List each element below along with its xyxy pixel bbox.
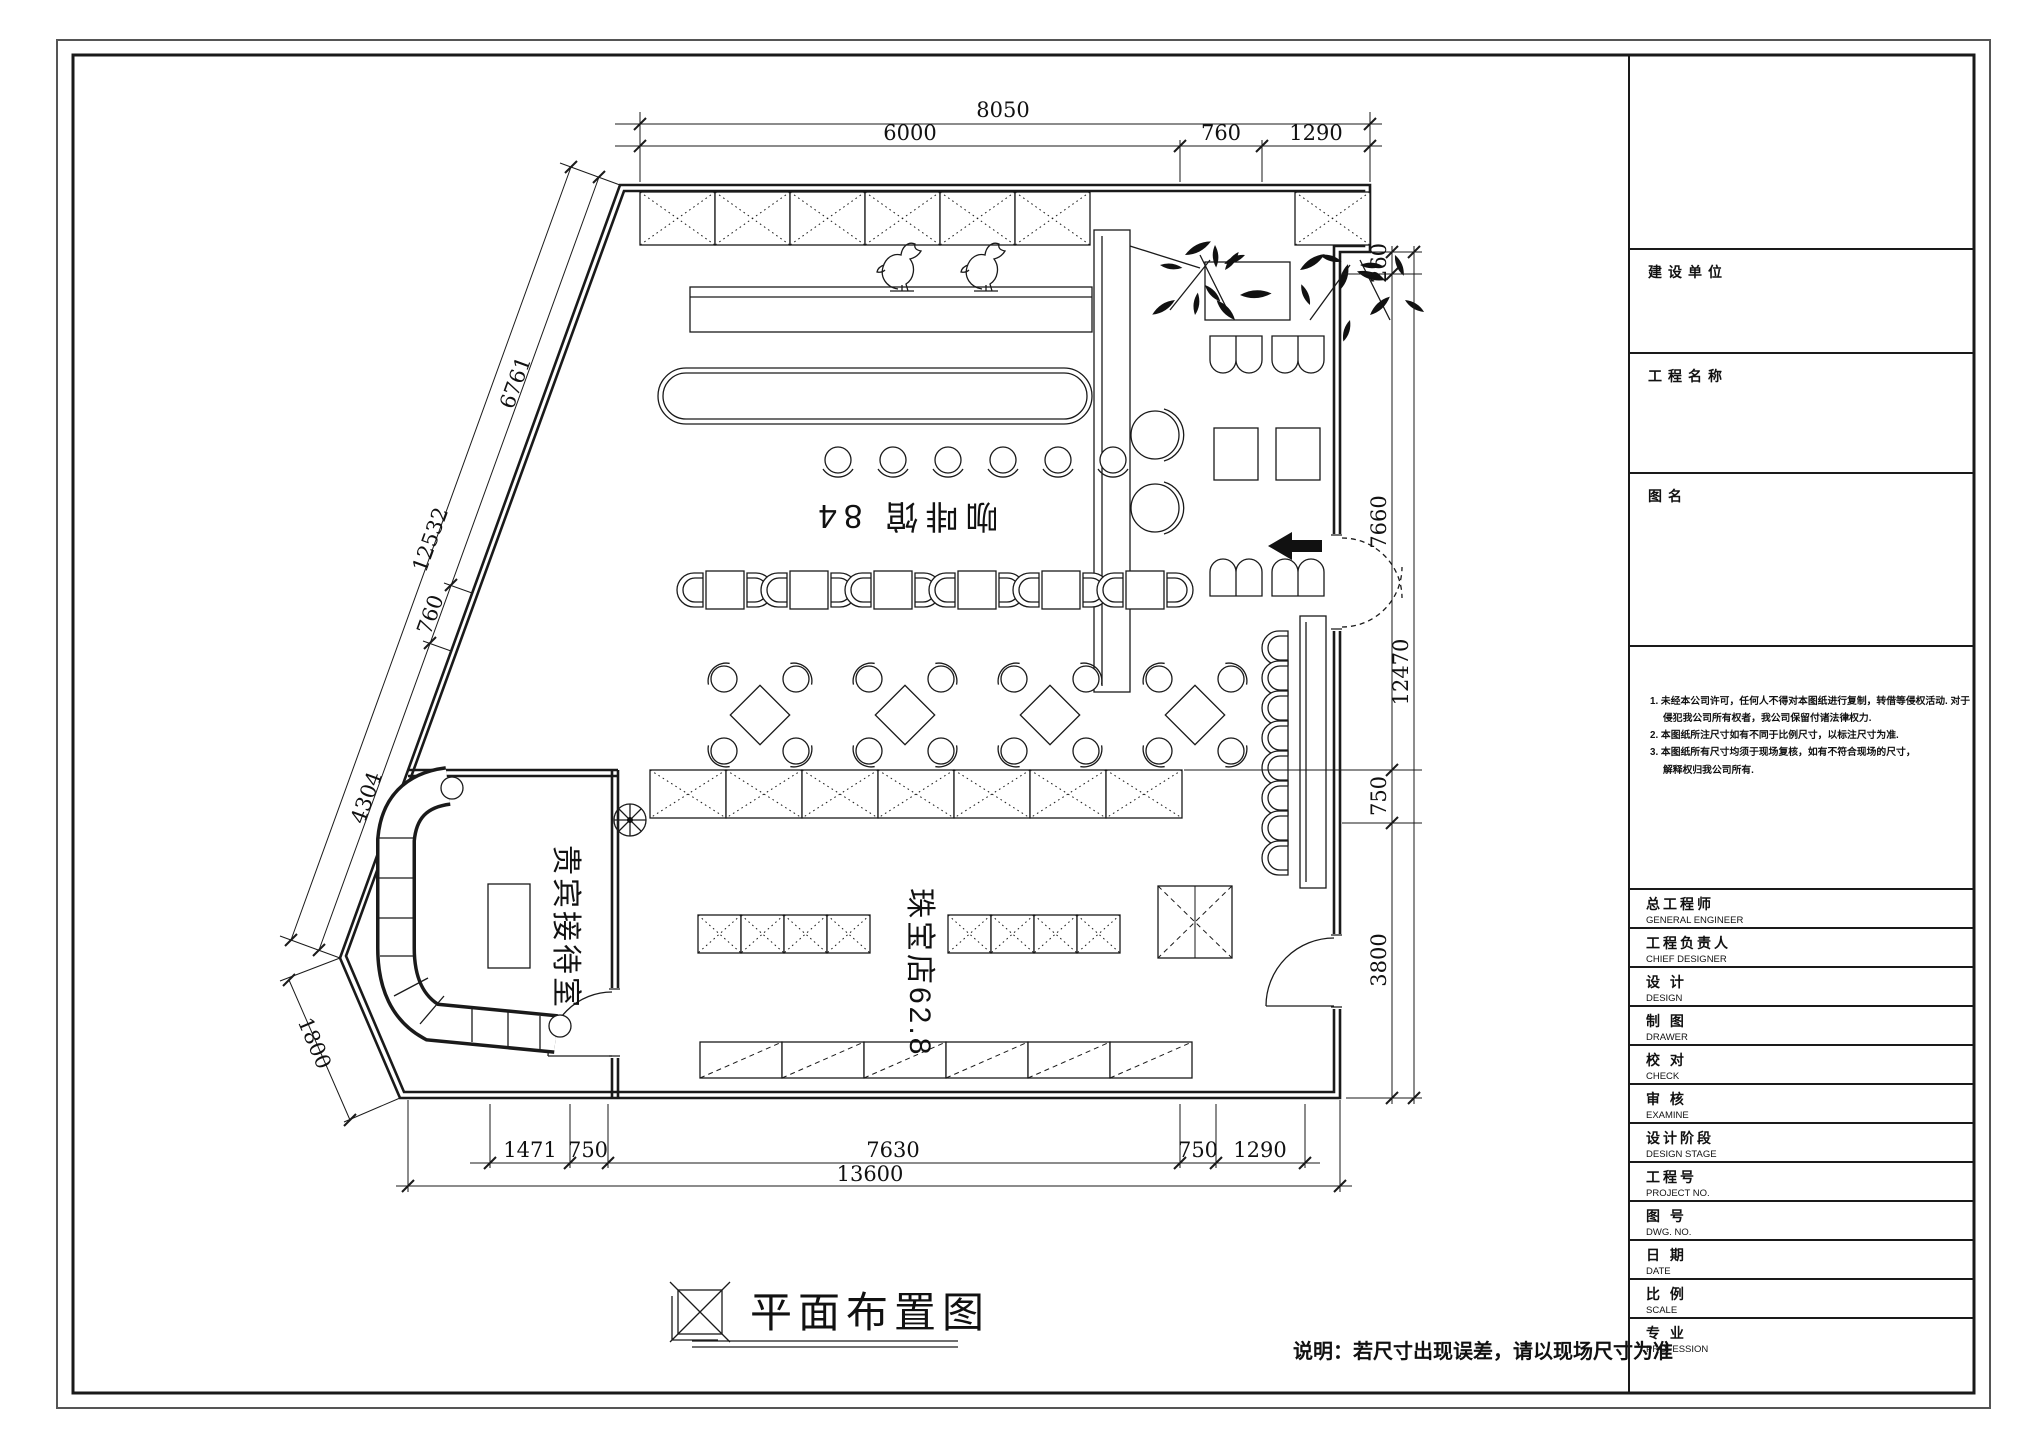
title-block: 建设单位 工程名称 图名 1. 未经本公司许可，任何人不得对本图纸进行复制，转借… [1628,55,1974,1393]
dim-right-7660: 7660 [1367,495,1391,548]
note-line: 3. 本图纸所有尺寸均须于现场复核，如有不符合现场的尺寸， [1650,744,1966,761]
rooster-figurine [877,243,921,291]
drawing-title-group: 平面布置图 [670,1282,990,1347]
title-block-notes: 1. 未经本公司许可，任何人不得对本图纸进行复制，转借等侵权活动. 对于 侵犯我… [1630,645,1974,888]
row-project-no: 工程号 PROJECT NO. [1630,1161,1974,1200]
vip-sofa [378,777,571,1050]
dim-bottom-total: 13600 [837,1162,904,1186]
dim-diag-total: 12532 [408,504,453,575]
section-symbol-icon [670,1282,730,1342]
dim-diag-6761: 6761 [495,353,536,411]
dim-top-1290: 1290 [1289,121,1342,145]
site-note: 说明：若尺寸出现误差，请以现场尺寸为准 [1293,1339,1673,1363]
jewelry-corner-case [1158,886,1232,958]
drawing-name-label: 图名 [1630,474,1974,506]
owner-label: 建设单位 [1630,250,1974,282]
booth-seating [1210,336,1324,596]
row-scale: 比 例 SCALE [1630,1278,1974,1317]
coffee-bar [658,230,1184,692]
note-line: 解释权归我公司所有. [1650,762,1966,779]
row-check: 校 对 CHECK [1630,1044,1974,1083]
wall-counter-chairs [1262,616,1326,888]
row-examine: 审 核 EXAMINE [1630,1083,1974,1122]
dim-right-total: 12470 [1389,639,1413,706]
coffee-shop-label: 咖啡馆 84 [812,498,999,535]
vip-table [488,884,530,968]
project-label: 工程名称 [1630,354,1974,386]
row-chief-designer: 工程负责人 CHIEF DESIGNER [1630,927,1974,966]
title-block-project: 工程名称 [1630,352,1974,472]
row-dwg-no: 图 号 DWG. NO. [1630,1200,1974,1239]
dim-bottom-1471: 1471 [503,1138,556,1162]
title-block-owner: 建设单位 [1630,248,1974,352]
dim-bottom-7630: 7630 [866,1138,919,1162]
note-line: 1. 未经本公司许可，任何人不得对本图纸进行复制，转借等侵权活动. 对于 [1650,693,1966,710]
row-design: 设 计 DESIGN [1630,966,1974,1005]
dim-corner-1800: 1800 [293,1014,336,1073]
dimensions-bottom: 1471 750 7630 750 1290 13600 [396,1100,1352,1192]
dim-top-total: 8050 [976,98,1029,122]
dim-bottom-1290: 1290 [1233,1138,1286,1162]
dim-right-3800: 3800 [1367,933,1391,986]
title-block-drawing-name: 图名 [1630,472,1974,645]
row-general-engineer: 总工程师 GENERAL ENGINEER [1630,888,1974,927]
dim-top-760: 760 [1201,121,1241,145]
drawing-title: 平面布置图 [750,1289,990,1336]
dim-bottom-750a: 750 [568,1138,608,1162]
title-block-logo-area [1630,55,1974,248]
row-date: 日 期 DATE [1630,1239,1974,1278]
fan-decor [614,804,646,836]
note-line: 侵犯我公司所有权者，我公司保留付诸法律权力. [1650,710,1966,727]
coffee-table-row [677,571,1193,609]
dimensions-top: 8050 6000 760 1290 [615,98,1382,182]
drawing-sheet: 8050 6000 760 1290 260 7660 750 3800 124… [0,0,2032,1448]
vip-room-label: 贵宾接待室 [549,845,582,1010]
rooster-figurine [961,243,1005,291]
jewelry-door [1266,938,1334,1006]
dim-top-6000: 6000 [883,121,936,145]
dim-diag-760: 760 [412,592,448,638]
entry-arrow-icon [1268,532,1322,560]
row-drawer: 制 图 DRAWER [1630,1005,1974,1044]
row-design-stage: 设计阶段 DESIGN STAGE [1630,1122,1974,1161]
note-line: 2. 本图纸所注尺寸如有不同于比例尺寸，以标注尺寸为准. [1650,727,1966,744]
row-profession: 专 业 PROFESSION [1630,1317,1974,1356]
dim-bottom-750b: 750 [1178,1138,1218,1162]
dim-right-260: 260 [1367,243,1391,283]
diamond-tables [703,658,1252,772]
dim-right-750: 750 [1367,776,1391,816]
jewelry-store-label: 珠宝店62.8 [903,888,936,1057]
